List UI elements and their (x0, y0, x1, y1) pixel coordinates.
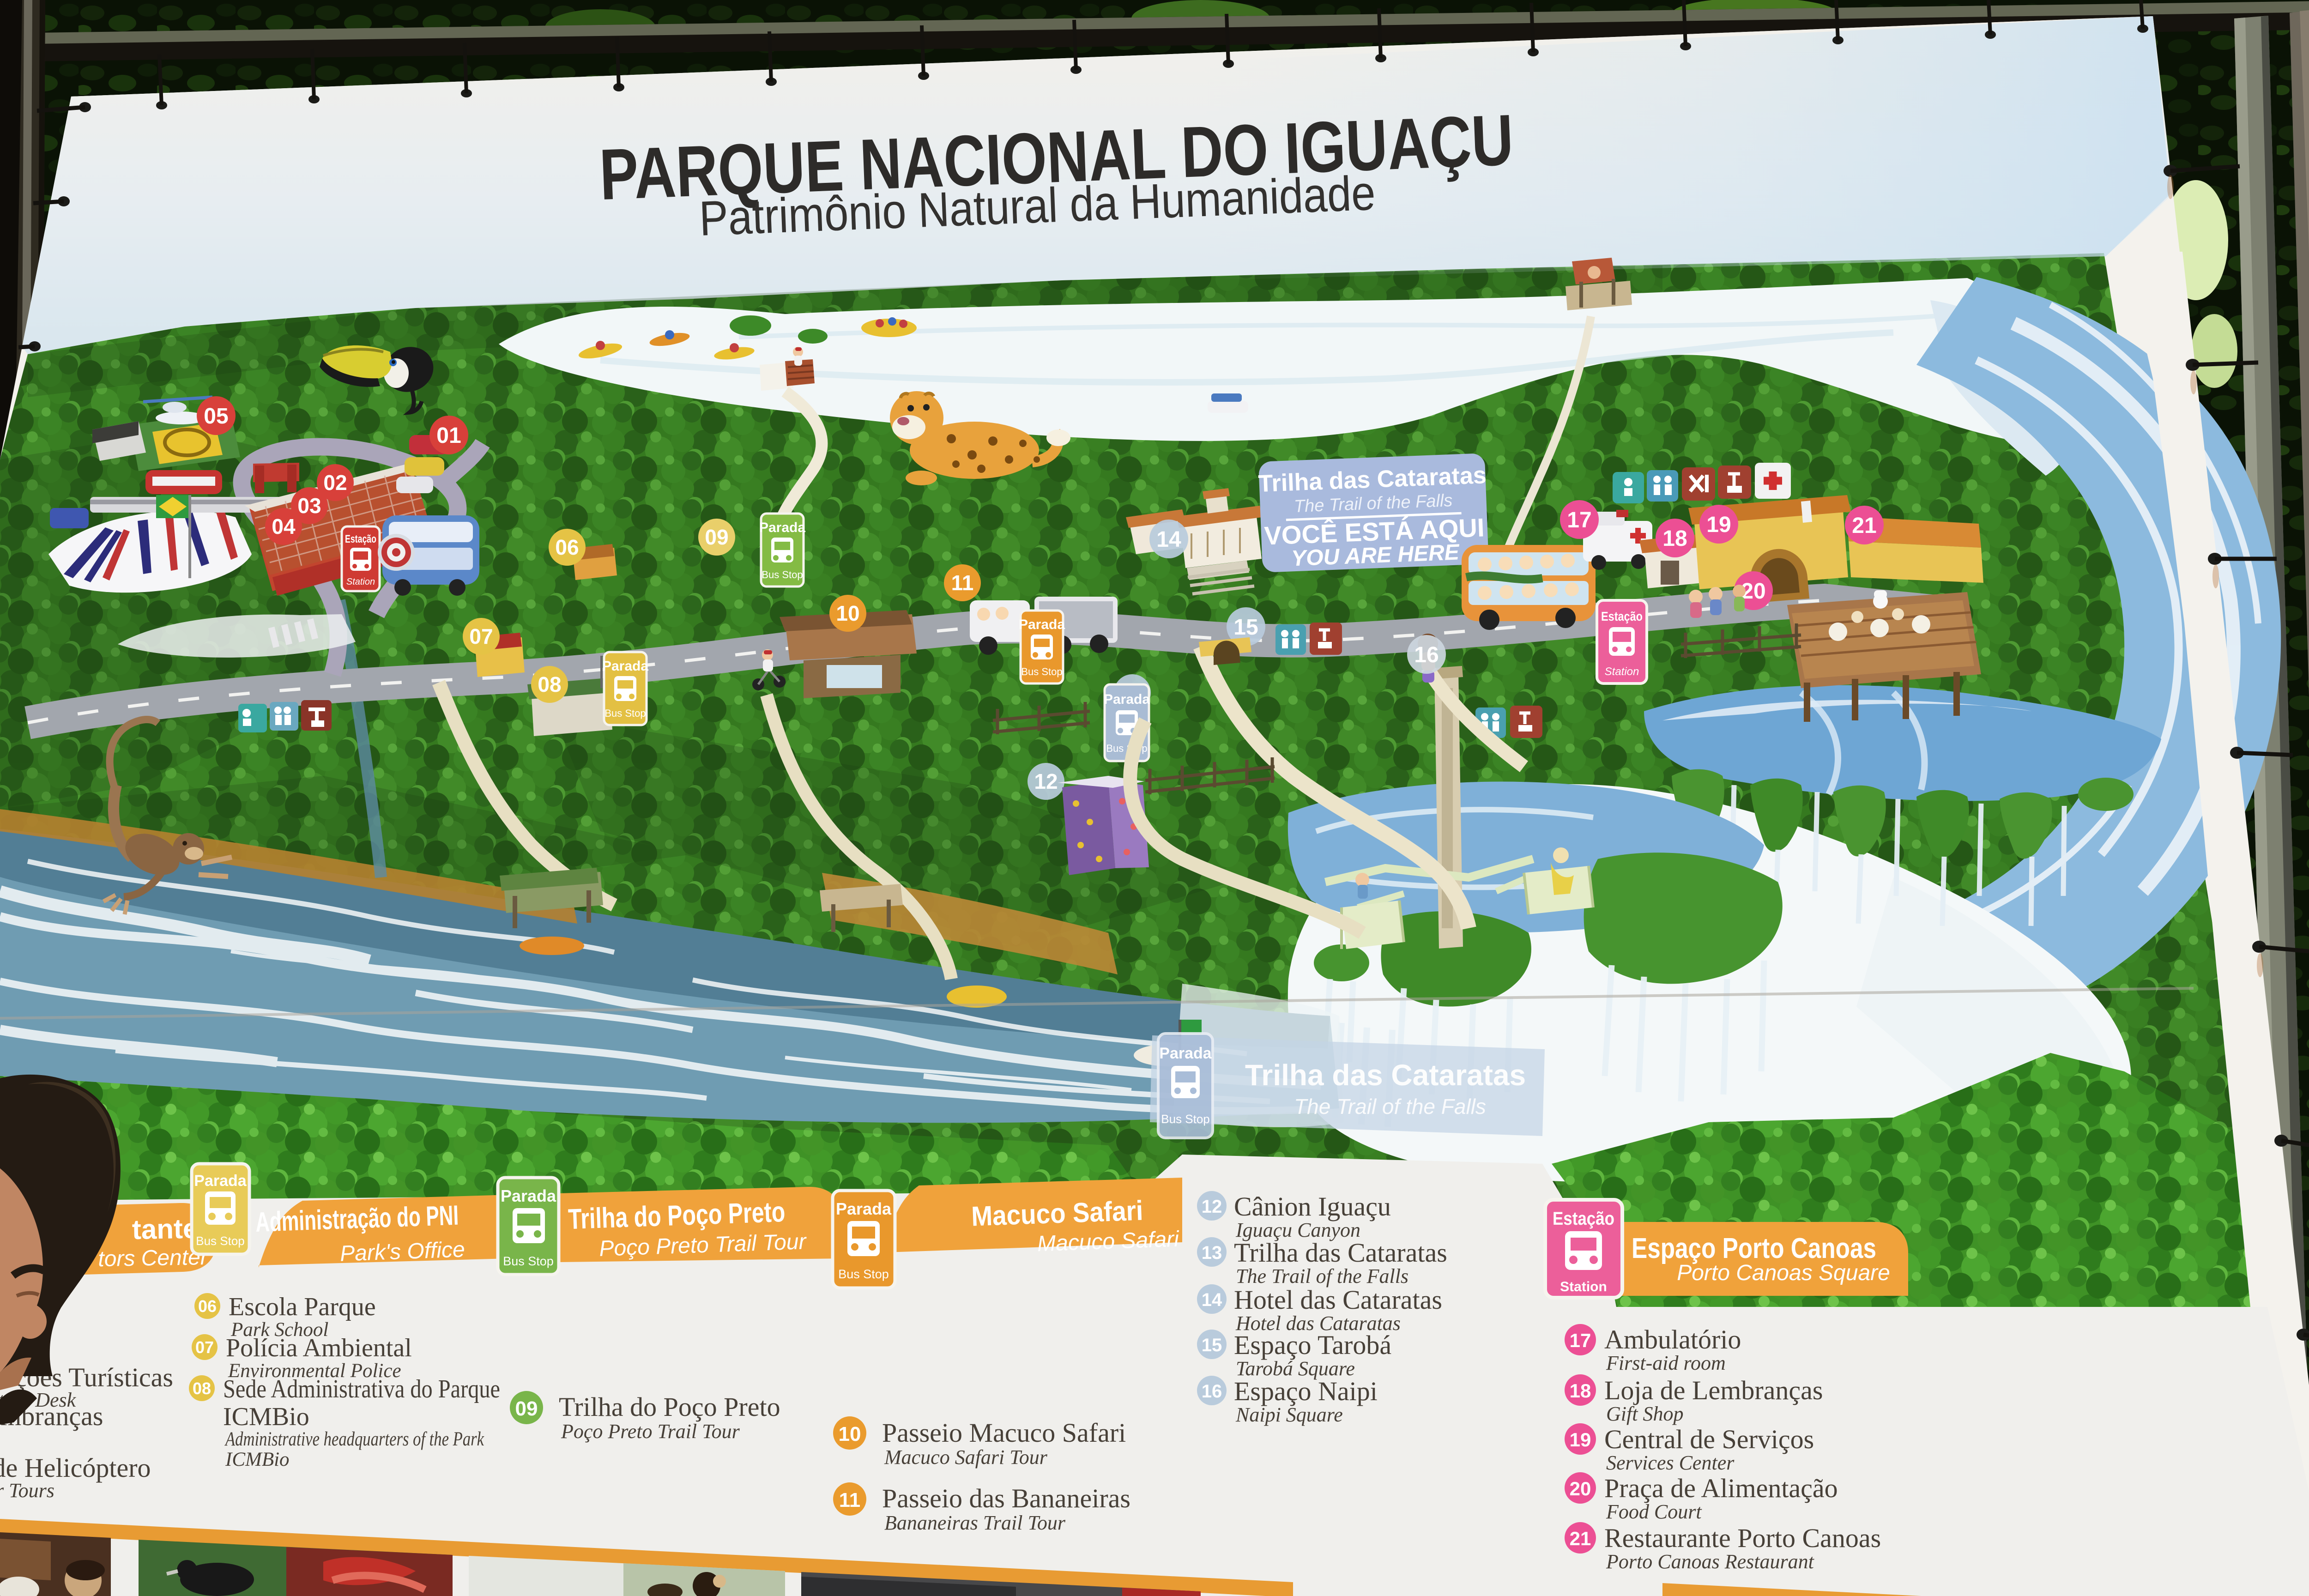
svg-text:ICMBio: ICMBio (223, 1403, 309, 1431)
svg-text:Bus Stop: Bus Stop (1161, 1112, 1210, 1126)
svg-text:Station: Station (1560, 1279, 1607, 1294)
svg-text:Helicopter Tours: Helicopter Tours (0, 1479, 54, 1502)
svg-text:Macuco Safari: Macuco Safari (971, 1195, 1143, 1232)
svg-text:21: 21 (1570, 1528, 1591, 1549)
svg-text:Bus Stop: Bus Stop (604, 707, 646, 719)
svg-text:17: 17 (1567, 508, 1591, 532)
svg-text:Naipi Square: Naipi Square (1235, 1403, 1343, 1426)
svg-text:Trilha das Cataratas: Trilha das Cataratas (1245, 1058, 1526, 1092)
svg-text:12: 12 (1202, 1197, 1222, 1217)
svg-text:15: 15 (1233, 615, 1258, 640)
svg-text:ICMBio: ICMBio (225, 1449, 290, 1470)
svg-text:Trilha das Cataratas: Trilha das Cataratas (1234, 1238, 1447, 1268)
svg-text:08: 08 (193, 1379, 211, 1398)
svg-text:Station: Station (1605, 665, 1639, 678)
svg-text:Hotel das Cataratas: Hotel das Cataratas (1234, 1285, 1442, 1315)
svg-text:16: 16 (1414, 643, 1439, 667)
svg-text:11: 11 (839, 1489, 861, 1511)
svg-text:Parada: Parada (1104, 692, 1150, 707)
svg-text:12: 12 (1034, 769, 1058, 793)
svg-text:11: 11 (951, 571, 974, 595)
svg-text:Passeio Macuco Safari: Passeio Macuco Safari (882, 1418, 1126, 1448)
svg-text:08: 08 (538, 672, 561, 696)
svg-text:Parada: Parada (602, 659, 648, 674)
svg-text:05: 05 (204, 404, 228, 429)
svg-text:16: 16 (1202, 1381, 1222, 1402)
svg-text:01: 01 (436, 423, 461, 448)
svg-text:Restaurante Porto Canoas: Restaurante Porto Canoas (1604, 1523, 1881, 1553)
svg-text:13: 13 (1202, 1243, 1222, 1263)
svg-text:The Trail of the Falls: The Trail of the Falls (1236, 1265, 1408, 1288)
svg-text:Parada: Parada (1019, 617, 1065, 632)
svg-text:Central de Serviços: Central de Serviços (1604, 1424, 1814, 1454)
svg-text:14: 14 (1156, 527, 1181, 552)
svg-text:21: 21 (1852, 514, 1876, 538)
svg-text:07: 07 (195, 1338, 214, 1357)
svg-text:Gift Shop: Gift Shop (1606, 1403, 1683, 1425)
svg-text:Parada: Parada (759, 520, 805, 535)
svg-text:Poço Preto Trail Tour: Poço Preto Trail Tour (561, 1420, 740, 1443)
svg-text:03: 03 (297, 494, 321, 518)
svg-text:06: 06 (198, 1297, 217, 1316)
svg-text:Loja de Lembranças: Loja de Lembranças (1604, 1375, 1823, 1405)
svg-text:Porto Canoas Square: Porto Canoas Square (1677, 1261, 1890, 1285)
svg-text:Escola Parque: Escola Parque (229, 1293, 376, 1321)
svg-text:Espaço Tarobá: Espaço Tarobá (1234, 1330, 1391, 1360)
svg-text:02: 02 (323, 471, 347, 495)
svg-text:Services Center: Services Center (1606, 1451, 1735, 1474)
svg-text:Passeio de Helicóptero: Passeio de Helicóptero (0, 1453, 151, 1483)
svg-text:04: 04 (272, 514, 296, 538)
svg-text:Parada: Parada (194, 1172, 247, 1190)
svg-text:Parada: Parada (836, 1199, 892, 1218)
svg-text:19: 19 (1706, 513, 1731, 537)
svg-text:Bus Stop: Bus Stop (1021, 666, 1062, 677)
svg-text:Parada: Parada (1159, 1045, 1212, 1062)
svg-text:Parada: Parada (501, 1186, 556, 1205)
svg-text:The Trail of the Falls: The Trail of the Falls (1294, 1094, 1486, 1118)
svg-text:18: 18 (1570, 1380, 1591, 1402)
svg-text:Polícia Ambiental: Polícia Ambiental (226, 1334, 412, 1362)
svg-text:Praça de Alimentação: Praça de Alimentação (1604, 1473, 1838, 1503)
svg-text:Espaço Porto Canoas: Espaço Porto Canoas (1632, 1233, 1876, 1264)
svg-text:Ambulatório: Ambulatório (1604, 1324, 1741, 1354)
svg-text:19: 19 (1570, 1429, 1591, 1451)
svg-text:Macuco Safari: Macuco Safari (1037, 1227, 1180, 1257)
svg-text:14: 14 (1202, 1290, 1222, 1310)
svg-text:Estação: Estação (345, 533, 376, 545)
svg-text:Cânion Iguaçu: Cânion Iguaçu (1234, 1191, 1391, 1221)
svg-text:Porto Canoas Restaurant: Porto Canoas Restaurant (1606, 1550, 1815, 1573)
svg-text:10: 10 (839, 1423, 861, 1445)
svg-text:Administrative headquarters of: Administrative headquarters of the Park (224, 1428, 484, 1450)
svg-text:20: 20 (1570, 1478, 1591, 1499)
svg-text:Bus Stop: Bus Stop (196, 1234, 245, 1248)
svg-text:Bus Stop: Bus Stop (762, 569, 803, 580)
svg-text:Estação: Estação (1601, 609, 1643, 623)
svg-text:Sede Administrativa do Parque: Sede Administrativa do Parque (223, 1375, 500, 1403)
svg-text:17: 17 (1570, 1330, 1591, 1351)
svg-text:Bananeiras Trail Tour: Bananeiras Trail Tour (884, 1511, 1066, 1534)
svg-text:09: 09 (515, 1397, 538, 1420)
svg-text:Bus Stop: Bus Stop (838, 1267, 889, 1281)
svg-text:Estação: Estação (1553, 1209, 1614, 1229)
svg-text:Passeio das Bananeiras: Passeio das Bananeiras (882, 1483, 1130, 1513)
svg-text:Food Court: Food Court (1606, 1500, 1702, 1523)
svg-text:Park's Office: Park's Office (339, 1237, 465, 1266)
svg-text:10: 10 (836, 601, 859, 625)
svg-text:15: 15 (1202, 1335, 1222, 1355)
svg-text:Trilha do Poço Preto: Trilha do Poço Preto (559, 1392, 780, 1422)
svg-text:Station: Station (346, 577, 375, 587)
svg-text:06: 06 (555, 535, 579, 559)
svg-text:07: 07 (469, 624, 493, 648)
svg-text:18: 18 (1662, 526, 1687, 551)
svg-text:Macuco Safari Tour: Macuco Safari Tour (884, 1446, 1048, 1469)
svg-text:First-aid room: First-aid room (1606, 1352, 1726, 1374)
svg-text:09: 09 (705, 525, 728, 549)
svg-text:Bus Stop: Bus Stop (503, 1254, 554, 1268)
svg-text:Espaço Naipi: Espaço Naipi (1234, 1376, 1378, 1406)
